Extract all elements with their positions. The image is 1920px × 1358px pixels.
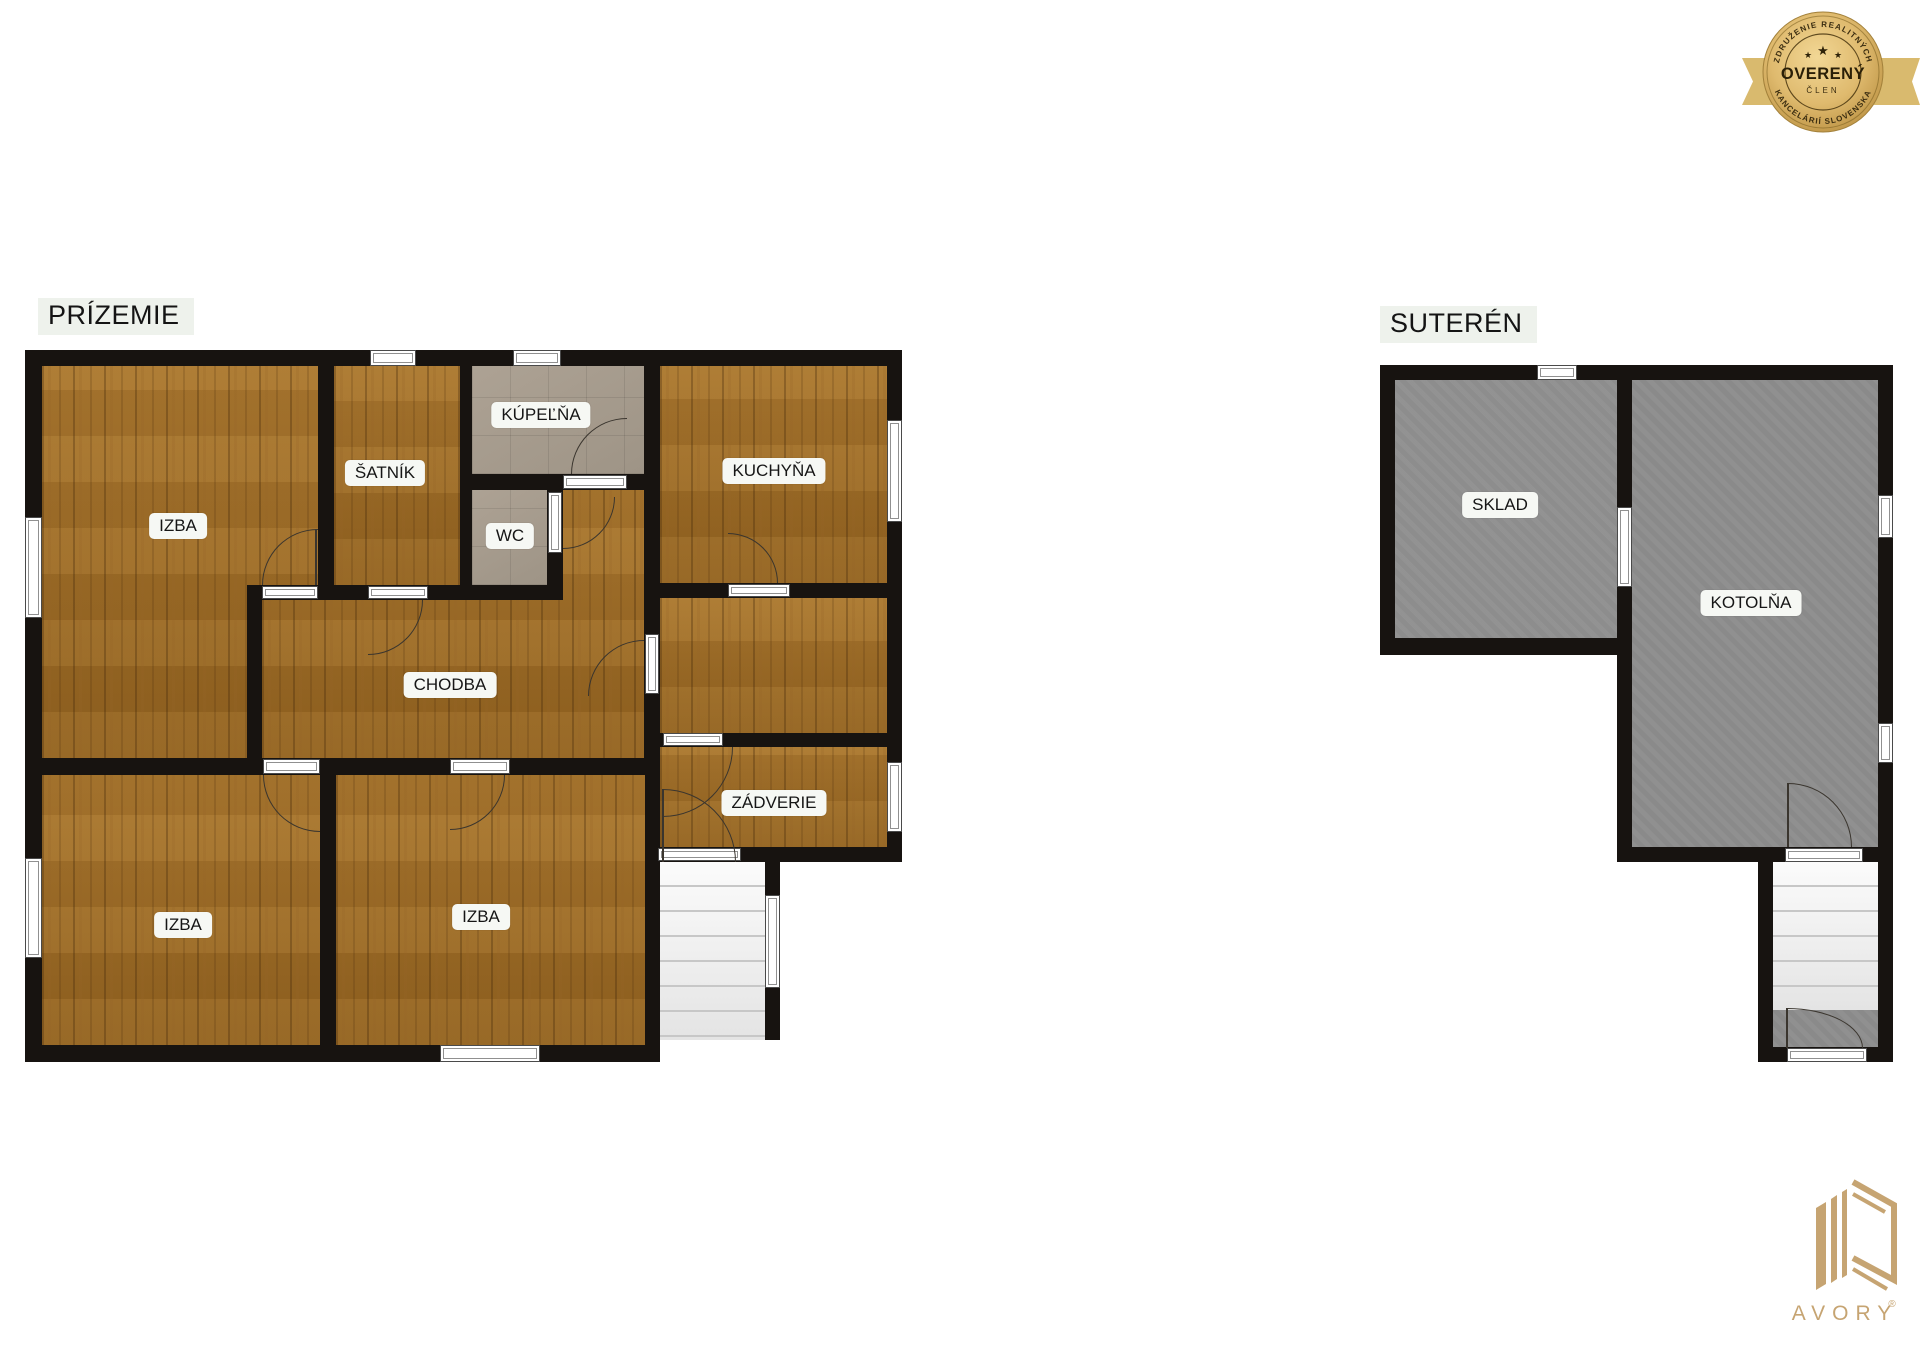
logo-mark-bar-2	[1831, 1195, 1837, 1283]
logo-registered-mark: ®	[1888, 1299, 1896, 1310]
room-label-kotolna: KOTOLŇA	[1701, 590, 1802, 616]
logo-mark-bar-3	[1842, 1189, 1847, 1278]
window-right-zadverie	[887, 762, 902, 832]
door-leaf-entry	[662, 789, 664, 862]
badge-title: OVERENÝ	[1781, 64, 1865, 83]
window-top-kupelna	[513, 350, 561, 366]
stairs-wall-bottom	[765, 988, 780, 1040]
logo-wordmark: AVORY	[1792, 1302, 1899, 1325]
door-kupelna	[563, 475, 627, 489]
badge-star-center: ★	[1817, 43, 1829, 58]
door-leaf-kotolna	[1787, 783, 1789, 847]
window-top-satnik	[370, 350, 416, 366]
room-label-zadverie: ZÁDVERIE	[721, 790, 826, 816]
suteren-stairs	[1773, 862, 1878, 1010]
window-suteren-top	[1537, 365, 1577, 380]
door-wc	[548, 492, 562, 553]
door-izba-tl-izba-bl	[263, 759, 320, 774]
door-leaf-izba-tl	[315, 529, 317, 585]
room-label-kuchyna: KUCHYŇA	[722, 458, 825, 484]
avory-logo: AVORY ®	[1788, 1168, 1910, 1338]
avory-logo-svg: AVORY ®	[1788, 1168, 1910, 1338]
window-left-izba-bottom	[25, 858, 42, 958]
room-label-sklad: SKLAD	[1462, 492, 1538, 518]
window-kotolna-right-lower	[1878, 723, 1893, 763]
door-leaf-suteren-entry	[1786, 1008, 1788, 1048]
door-izba-tl-chodba	[262, 586, 318, 599]
window-right-kuchyna	[887, 420, 902, 522]
door-suteren-entry	[1787, 1048, 1867, 1062]
door-sklad-kotolna	[1617, 507, 1632, 587]
suteren-title: SUTERÉN	[1380, 306, 1537, 343]
overeny-badge-svg: ZDRUŽENIE REALITNÝCH KANCELÁRIÍ SLOVENSK…	[1742, 8, 1920, 140]
badge-star-left: ★	[1804, 50, 1812, 60]
suteren-wall-right-lower	[1878, 862, 1893, 1062]
floorplan-page: PRÍZEMIE IZBA ŠATNÍK KÚPEĽŇA	[0, 0, 1920, 1358]
logo-mark-bar-1	[1816, 1202, 1826, 1290]
room-label-wc: WC	[486, 523, 534, 549]
room-label-kupelna: KÚPEĽŇA	[491, 402, 590, 428]
suteren-wall-stairs-left	[1758, 862, 1773, 1062]
room-label-chodba: CHODBA	[404, 672, 497, 698]
window-left-izba-top	[25, 517, 42, 618]
room-izba-bottom-left	[42, 775, 320, 1045]
door-kotolna-stairs	[1785, 848, 1863, 862]
door-satnik	[368, 586, 428, 599]
prizemie-title: PRÍZEMIE	[38, 298, 194, 335]
badge-subtitle: ČLEN	[1806, 86, 1839, 95]
window-bottom-izba	[440, 1045, 540, 1062]
door-kuchyna	[728, 584, 790, 597]
door-chodba-middle-right	[645, 634, 659, 694]
prizemie-stairs	[660, 862, 765, 1040]
room-label-izba-bottom-middle: IZBA	[452, 904, 510, 930]
door-middle-right-zadverie	[663, 733, 723, 746]
room-middle-right	[660, 598, 887, 733]
overeny-badge: ZDRUŽENIE REALITNÝCH KANCELÁRIÍ SLOVENSK…	[1742, 8, 1920, 140]
door-chodba-izba-bm	[450, 759, 510, 774]
stairs-railing	[765, 895, 780, 988]
room-label-izba-top-left: IZBA	[149, 513, 207, 539]
badge-star-right: ★	[1834, 50, 1842, 60]
stairs-wall-top	[765, 862, 780, 895]
room-label-izba-bottom-left: IZBA	[154, 912, 212, 938]
window-kotolna-right-upper	[1878, 495, 1893, 538]
room-label-satnik: ŠATNÍK	[345, 460, 425, 486]
